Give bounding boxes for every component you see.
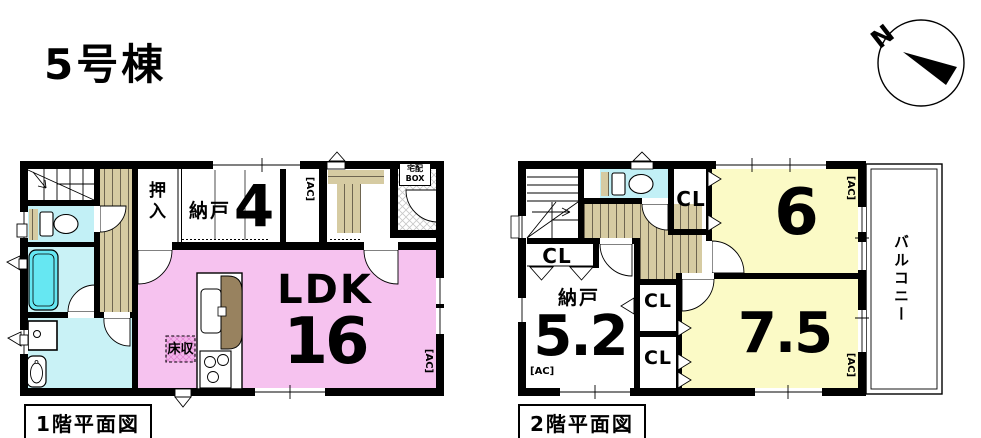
balcony-label: バルコニー bbox=[893, 234, 908, 324]
entrance-hall-floor bbox=[337, 184, 361, 233]
toilet-shelf-f2 bbox=[601, 172, 609, 196]
ac-label-room75: [AC] bbox=[845, 349, 855, 381]
bathtub-icon bbox=[29, 250, 58, 310]
kitchen-counter-icon bbox=[197, 273, 242, 389]
sink-icon-f1 bbox=[27, 356, 46, 387]
closet-label-mid-lower: CL bbox=[640, 349, 676, 368]
floor-storage-label: 床収 bbox=[163, 343, 198, 356]
washing-machine-icon bbox=[28, 321, 57, 350]
room-label-oshiire: 押入 bbox=[146, 181, 163, 223]
stove-icon bbox=[200, 351, 231, 388]
stairs-f2 bbox=[527, 177, 578, 238]
ac-label-ldk: [AC] bbox=[423, 345, 433, 377]
room-size-6: 6 bbox=[767, 181, 823, 245]
delivery-box-line2: BOX bbox=[400, 174, 430, 184]
page-title: 5号棟 bbox=[44, 44, 166, 86]
room-size-ldk: 16 bbox=[269, 310, 381, 374]
floorplan-page: 5号棟 N 押入 納戸 4 [AC] 宅配 BOX LDK 16 床収 [AC]… bbox=[0, 0, 981, 438]
ac-label-room6: [AC] bbox=[845, 172, 855, 204]
hallway-wood-floor bbox=[100, 169, 132, 312]
ac-label-entrance: [AC] bbox=[304, 173, 314, 205]
room-label-ldk: LDK bbox=[265, 270, 385, 310]
hall-wood-f2a bbox=[584, 204, 640, 238]
stairs-f1 bbox=[28, 169, 94, 200]
delivery-box-label: 宅配 BOX bbox=[399, 163, 431, 186]
nando-door-f2 bbox=[600, 244, 632, 276]
room-size-75: 7.5 bbox=[722, 306, 847, 362]
floor2-caption: 2階平面図 bbox=[518, 404, 646, 438]
room-size-nando-f1: 4 bbox=[228, 177, 280, 235]
closet-label-top: CL bbox=[674, 189, 708, 209]
floor1-caption: 1階平面図 bbox=[24, 404, 152, 438]
delivery-box-line1: 宅配 bbox=[400, 164, 430, 174]
toilet-shelf-f1 bbox=[29, 209, 38, 240]
ac-label-nando-f2: [AC] bbox=[530, 367, 566, 377]
closet-label-mid-upper: CL bbox=[640, 292, 676, 311]
closet-label-left: CL bbox=[535, 246, 579, 266]
room-size-nando-f2: 5.2 bbox=[530, 309, 630, 365]
entrance-step bbox=[328, 170, 384, 184]
